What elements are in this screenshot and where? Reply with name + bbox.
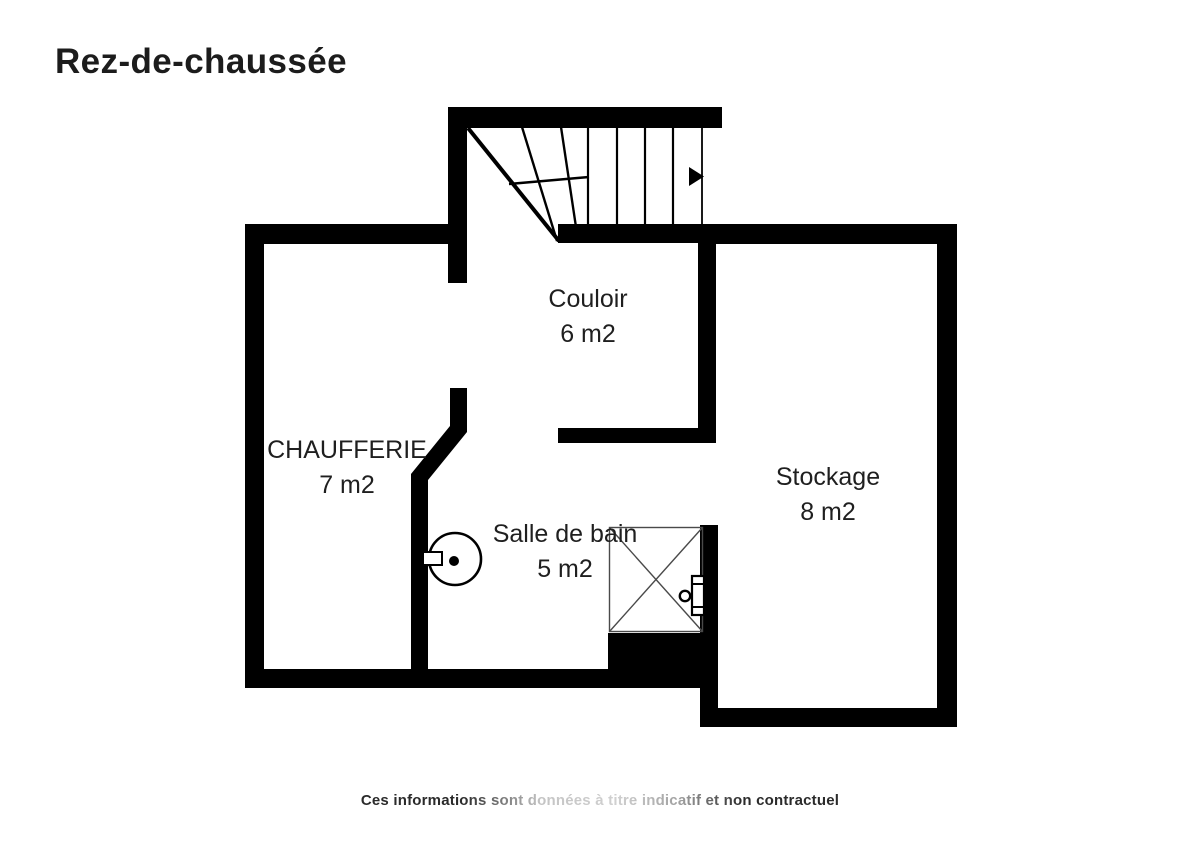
- staircase-icon: [468, 127, 702, 241]
- room-area: 8 m2: [776, 495, 880, 530]
- floor-plan-page: Rez-de-chaussée: [0, 0, 1200, 849]
- floor-plan: [0, 0, 1200, 849]
- disclaimer-text: Ces informations sont données à titre in…: [0, 792, 1200, 809]
- room-name: Salle de bain: [493, 517, 638, 552]
- room-area: 6 m2: [548, 317, 627, 352]
- water-heater-icon: [423, 533, 481, 585]
- room-label-couloir: Couloir 6 m2: [548, 282, 627, 352]
- room-area: 5 m2: [493, 552, 638, 587]
- room-area: 7 m2: [267, 468, 427, 503]
- room-name: CHAUFFERIE: [267, 433, 427, 468]
- room-label-salle-de-bain: Salle de bain 5 m2: [493, 517, 638, 587]
- radiator-valve-icon: [680, 576, 705, 615]
- room-name: Couloir: [548, 282, 627, 317]
- room-name: Stockage: [776, 460, 880, 495]
- room-label-chaufferie: CHAUFFERIE 7 m2: [267, 433, 427, 503]
- room-label-stockage: Stockage 8 m2: [776, 460, 880, 530]
- walls: [245, 107, 957, 727]
